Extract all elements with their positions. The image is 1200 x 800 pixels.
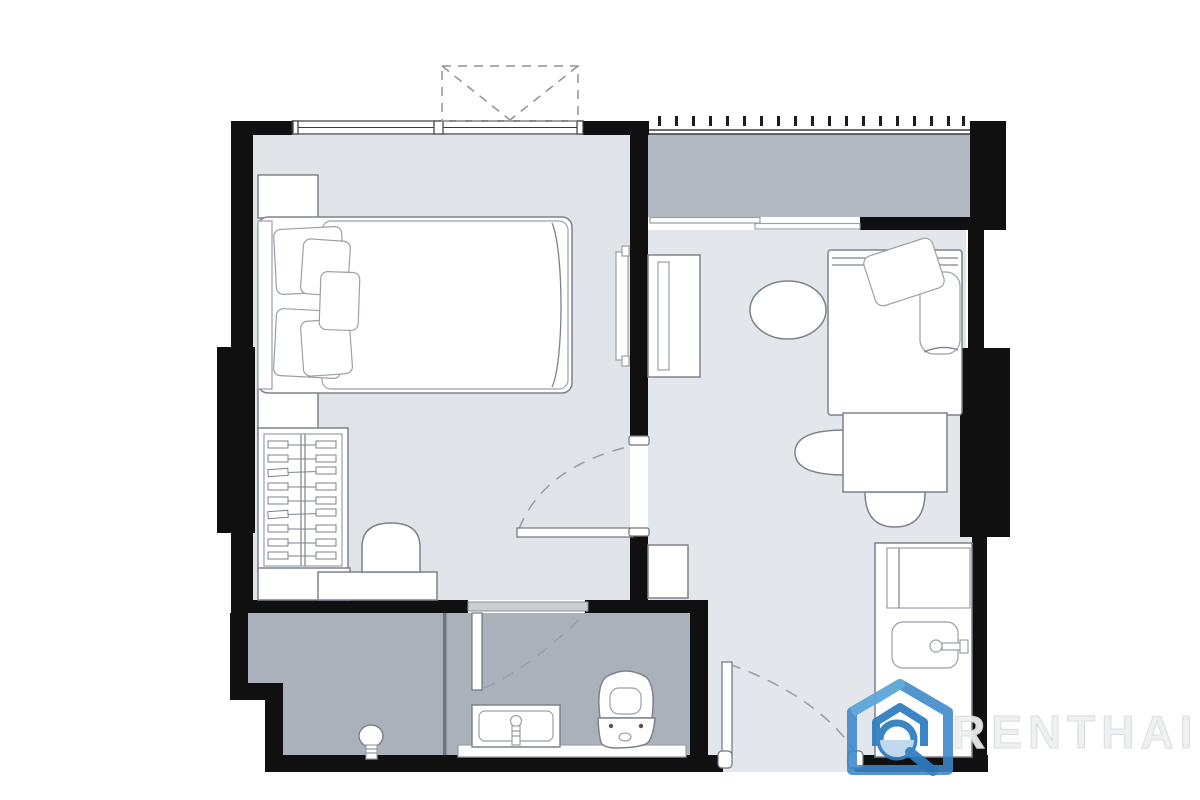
bedroom-window [292, 121, 583, 134]
vanity-desk-right [318, 572, 437, 600]
balcony-sliding-door [650, 218, 860, 230]
nightstand-top [258, 175, 318, 218]
floor-plan-canvas: RENTHAI [0, 0, 1200, 800]
renthai-wordmark: RENTHAI [952, 706, 1198, 758]
headboard [258, 221, 272, 389]
refrigerator [887, 548, 970, 608]
faucet-icon [930, 640, 942, 652]
shoe-cabinet [648, 545, 688, 598]
dining-table [843, 413, 947, 492]
floor-plan-page: RENTHAI [0, 0, 1200, 800]
balcony-floor [648, 134, 970, 217]
wardrobe [258, 428, 348, 572]
double-bed [258, 217, 572, 393]
basin-faucet-icon [511, 716, 522, 727]
shower-partition [443, 613, 447, 755]
railing-ticks [658, 116, 965, 126]
oval-pouf [750, 281, 826, 339]
balcony-railing [649, 116, 970, 134]
washbasin-vanity [472, 705, 560, 747]
bedroom-tv [616, 246, 629, 366]
stool [362, 523, 420, 572]
ac-ledge-icon [442, 66, 578, 121]
kitchen-sink [892, 622, 968, 668]
toilet [598, 671, 655, 748]
tv-console [648, 255, 700, 377]
daybed-sofa [828, 236, 962, 415]
